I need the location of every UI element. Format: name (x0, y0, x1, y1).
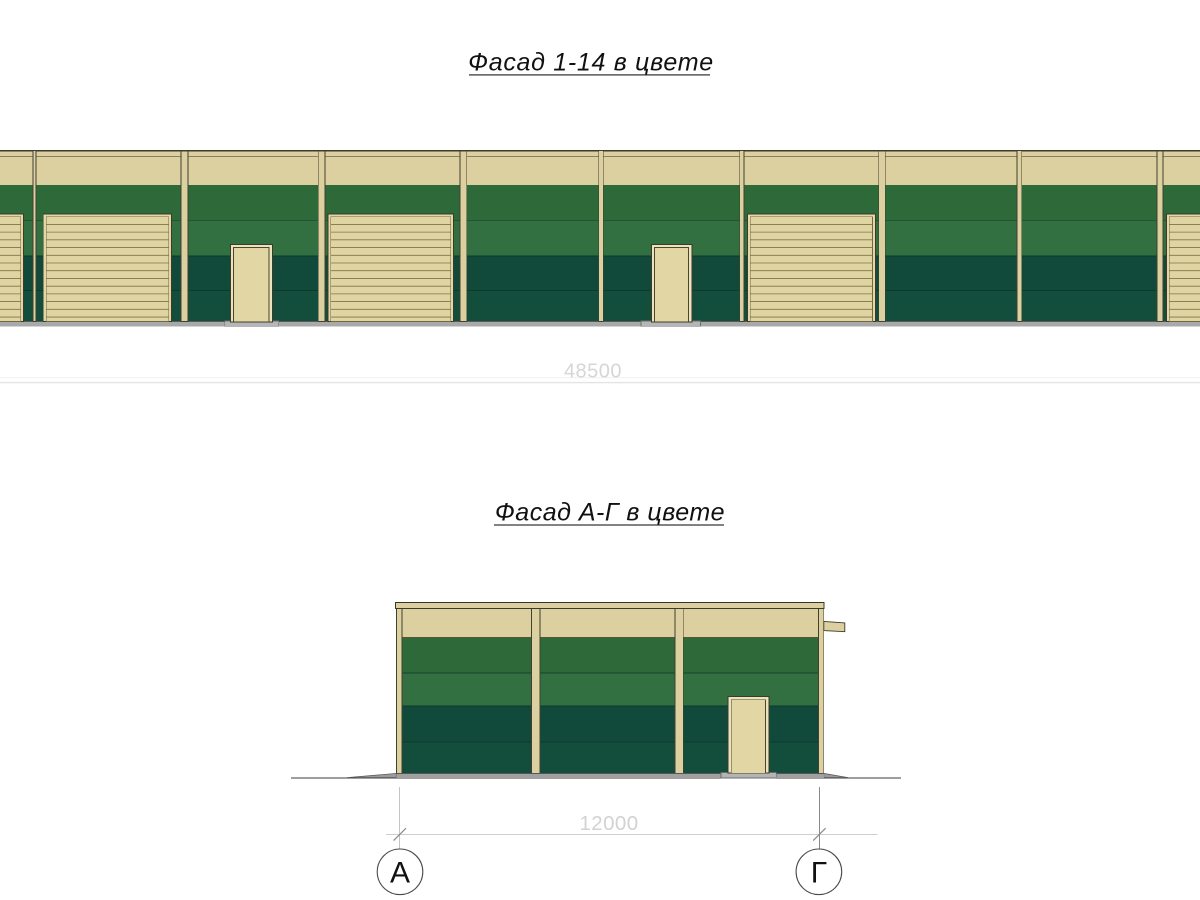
svg-text:А: А (390, 857, 410, 890)
svg-text:Фасад 1-14 в цвете: Фасад 1-14 в цвете (468, 49, 714, 77)
svg-text:Фасад А-Г в цвете: Фасад А-Г в цвете (495, 499, 725, 527)
svg-text:Г: Г (811, 857, 827, 890)
svg-text:48500: 48500 (564, 361, 622, 383)
svg-text:12000: 12000 (579, 812, 638, 835)
